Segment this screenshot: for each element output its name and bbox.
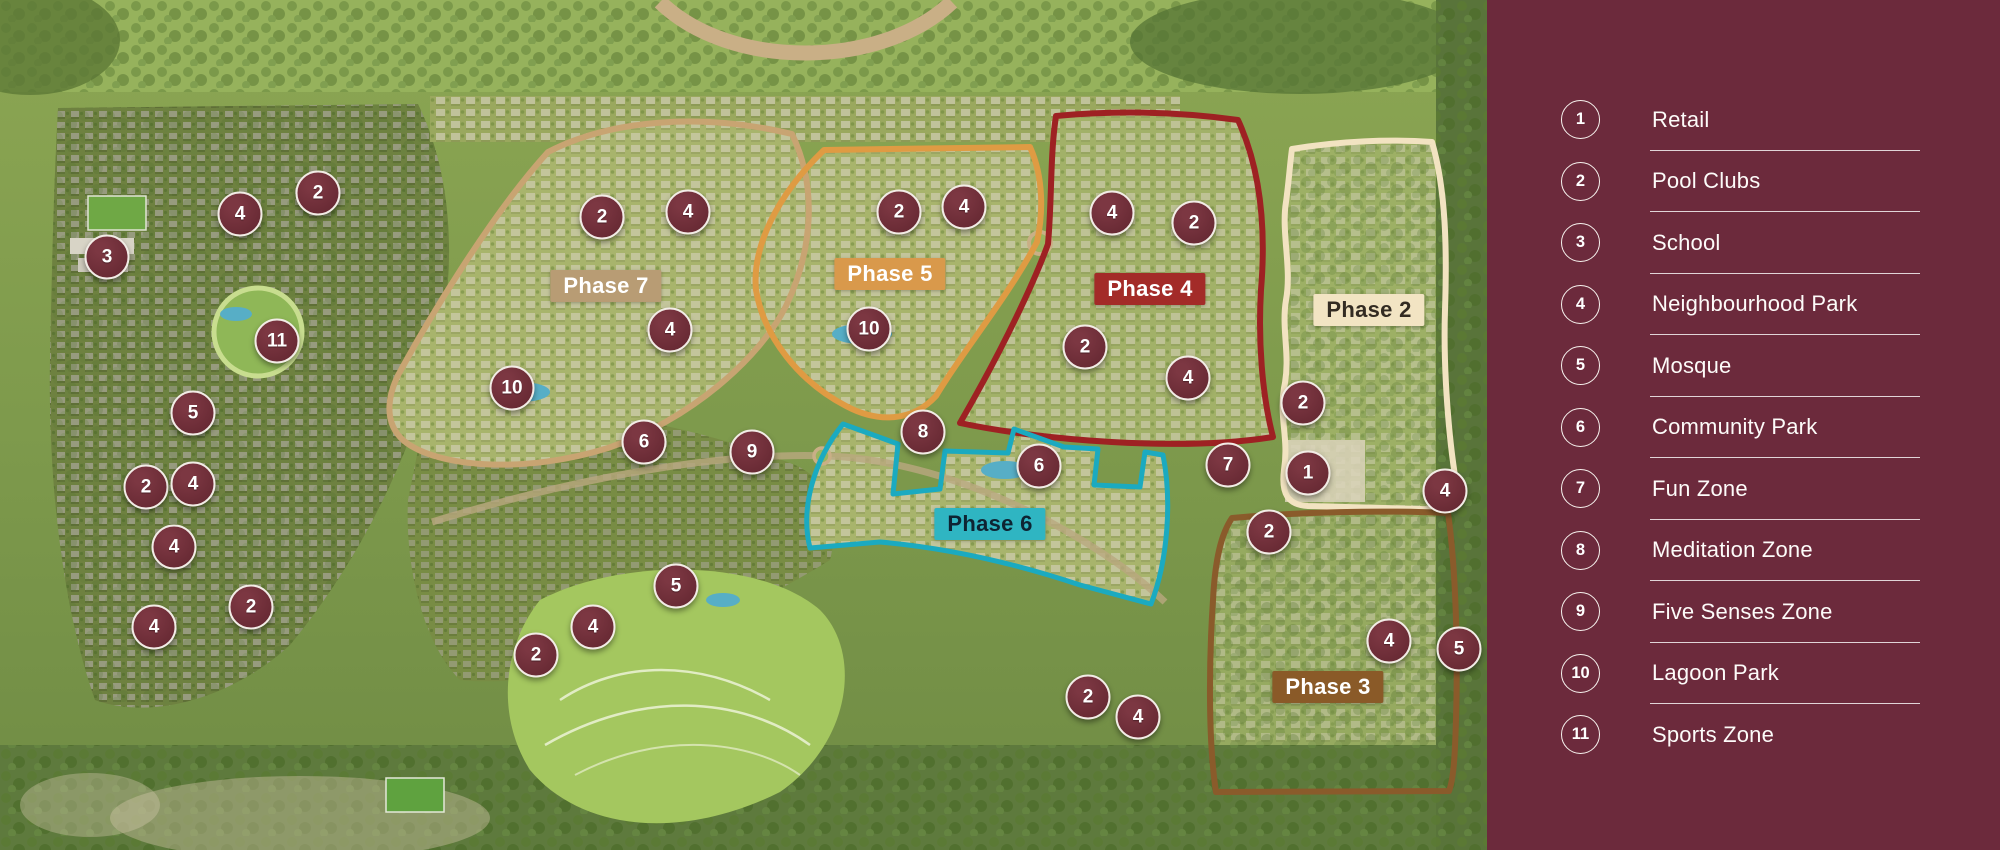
legend-label: School [1652,230,1720,256]
map-marker-4[interactable]: 4 [571,605,616,650]
masterplan-screenshot: Phase 7Phase 5Phase 4Phase 2Phase 6Phase… [0,0,2000,850]
map-marker-4[interactable]: 4 [1116,695,1161,740]
map-marker-4[interactable]: 4 [942,185,987,230]
map-marker-2[interactable]: 2 [124,465,169,510]
map-marker-2[interactable]: 2 [1172,201,1217,246]
legend-number: 7 [1576,479,1585,498]
map-marker-2[interactable]: 2 [1066,675,1111,720]
map-marker-4[interactable]: 4 [666,190,711,235]
legend-number: 4 [1576,295,1585,314]
map-marker-4[interactable]: 4 [648,308,693,353]
legend-item-pool-clubs[interactable]: 2Pool Clubs [1487,151,2000,213]
map-marker-3[interactable]: 3 [85,235,130,280]
legend-item-fun-zone[interactable]: 7Fun Zone [1487,458,2000,520]
legend-number-badge: 6 [1561,408,1600,447]
map-marker-2[interactable]: 2 [514,633,559,678]
legend-list: 1Retail2Pool Clubs3School4Neighbourhood … [1487,89,2000,766]
legend-number-badge: 5 [1561,346,1600,385]
map-marker-4[interactable]: 4 [1166,356,1211,401]
legend-item-meditation-zone[interactable]: 8Meditation Zone [1487,520,2000,582]
legend-label: Five Senses Zone [1652,599,1833,625]
legend-item-neighbourhood-park[interactable]: 4Neighbourhood Park [1487,274,2000,336]
map-marker-8[interactable]: 8 [901,410,946,455]
map-marker-4[interactable]: 4 [152,525,197,570]
legend-number: 9 [1576,602,1585,621]
map-marker-4[interactable]: 4 [171,462,216,507]
legend-label: Community Park [1652,414,1817,440]
map-marker-1[interactable]: 1 [1286,451,1331,496]
legend-number: 2 [1576,172,1585,191]
map-marker-2[interactable]: 2 [580,195,625,240]
map-marker-4[interactable]: 4 [132,605,177,650]
masterplan-map: Phase 7Phase 5Phase 4Phase 2Phase 6Phase… [0,0,1487,850]
legend-label: Sports Zone [1652,722,1774,748]
map-marker-5[interactable]: 5 [171,391,216,436]
map-marker-2[interactable]: 2 [877,190,922,235]
legend-label: Pool Clubs [1652,168,1760,194]
legend-sidebar: 1Retail2Pool Clubs3School4Neighbourhood … [1487,0,2000,850]
legend-number-badge: 4 [1561,285,1600,324]
map-marker-2[interactable]: 2 [229,585,274,630]
map-marker-2[interactable]: 2 [1247,510,1292,555]
map-marker-5[interactable]: 5 [654,564,699,609]
legend-item-lagoon-park[interactable]: 10Lagoon Park [1487,643,2000,705]
legend-number: 5 [1576,356,1585,375]
map-marker-2[interactable]: 2 [296,171,341,216]
legend-item-mosque[interactable]: 5Mosque [1487,335,2000,397]
legend-number-badge: 9 [1561,592,1600,631]
legend-number: 10 [1571,664,1589,683]
legend-number-badge: 11 [1561,715,1600,754]
map-marker-5[interactable]: 5 [1437,627,1482,672]
legend-label: Neighbourhood Park [1652,291,1857,317]
legend-label: Fun Zone [1652,476,1748,502]
legend-item-school[interactable]: 3School [1487,212,2000,274]
map-marker-7[interactable]: 7 [1206,443,1251,488]
legend-label: Lagoon Park [1652,660,1779,686]
legend-label: Retail [1652,107,1709,133]
legend-number-badge: 8 [1561,531,1600,570]
map-marker-6[interactable]: 6 [1017,444,1062,489]
map-marker-2[interactable]: 2 [1063,325,1108,370]
legend-number: 8 [1576,541,1585,560]
map-marker-10[interactable]: 10 [490,366,535,411]
map-marker-4[interactable]: 4 [1090,191,1135,236]
legend-item-sports-zone[interactable]: 11Sports Zone [1487,704,2000,766]
legend-number: 1 [1576,110,1585,129]
map-marker-6[interactable]: 6 [622,420,667,465]
legend-number: 11 [1572,725,1589,744]
legend-label: Meditation Zone [1652,537,1813,563]
map-marker-2[interactable]: 2 [1281,381,1326,426]
map-marker-4[interactable]: 4 [218,192,263,237]
map-marker-10[interactable]: 10 [847,307,892,352]
legend-item-five-senses-zone[interactable]: 9Five Senses Zone [1487,581,2000,643]
legend-label: Mosque [1652,353,1731,379]
map-marker-9[interactable]: 9 [730,430,775,475]
legend-item-retail[interactable]: 1Retail [1487,89,2000,151]
marker-layer: 4231152444224410241042242148672695422445 [0,0,1487,850]
map-marker-4[interactable]: 4 [1423,469,1468,514]
legend-number: 3 [1576,233,1585,252]
legend-number-badge: 7 [1561,469,1600,508]
legend-number-badge: 2 [1561,162,1600,201]
map-marker-11[interactable]: 11 [255,319,300,364]
legend-number-badge: 3 [1561,223,1600,262]
legend-number-badge: 1 [1561,100,1600,139]
map-marker-4[interactable]: 4 [1367,619,1412,664]
legend-number: 6 [1576,418,1585,437]
legend-item-community-park[interactable]: 6Community Park [1487,397,2000,459]
legend-number-badge: 10 [1561,654,1600,693]
